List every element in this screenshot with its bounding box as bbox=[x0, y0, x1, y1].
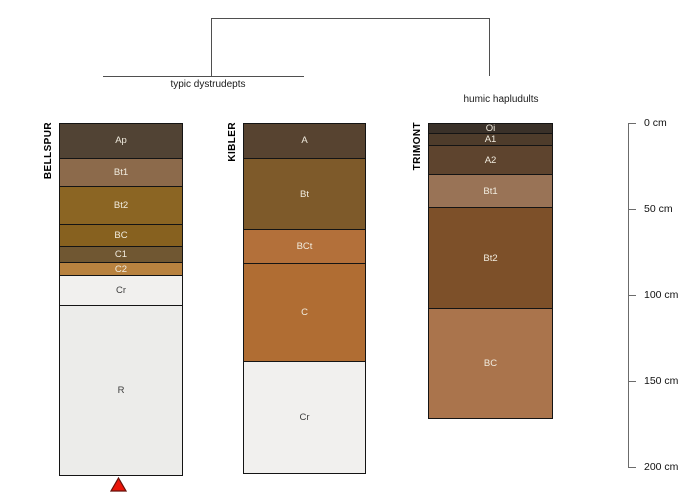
horizon-trimont-bt2: Bt2 bbox=[429, 207, 552, 308]
depth-tick-150 bbox=[628, 381, 636, 382]
horizon-bellspur-bc: BC bbox=[60, 224, 182, 246]
horizon-bellspur-ap: Ap bbox=[60, 124, 182, 158]
depth-tick-100 bbox=[628, 295, 636, 296]
horizon-trimont-oi: Oi bbox=[429, 124, 552, 133]
depth-tick-label-0: 0 cm bbox=[644, 117, 667, 129]
depth-tick-0 bbox=[628, 123, 636, 124]
horizon-kibler-a: A bbox=[244, 124, 365, 158]
depth-tick-200 bbox=[628, 467, 636, 468]
horizon-kibler-cr: Cr bbox=[244, 361, 365, 473]
depth-tick-label-200: 200 cm bbox=[644, 461, 678, 473]
depth-tick-50 bbox=[628, 209, 636, 210]
horizon-trimont-bt1: Bt1 bbox=[429, 174, 552, 207]
horizon-bellspur-bt1: Bt1 bbox=[60, 158, 182, 186]
soil-profile-figure: typic dystrudepts humic hapludults ApBt1… bbox=[0, 0, 700, 500]
dendrogram-left-branch bbox=[211, 18, 212, 76]
horizon-kibler-bct: BCt bbox=[244, 229, 365, 263]
cluster-label-typic-dystrudepts: typic dystrudepts bbox=[58, 79, 358, 90]
horizon-bellspur-c2: C2 bbox=[60, 262, 182, 275]
dendrogram-right-branch bbox=[489, 18, 490, 76]
red-triangle-icon bbox=[111, 478, 126, 491]
horizon-trimont-a2: A2 bbox=[429, 145, 552, 174]
horizon-kibler-bt: Bt bbox=[244, 158, 365, 229]
horizon-kibler-c: C bbox=[244, 263, 365, 361]
horizon-bellspur-c1: C1 bbox=[60, 246, 182, 262]
profile-bellspur: ApBt1Bt2BCC1C2CrR bbox=[59, 123, 183, 476]
selected-profile-marker bbox=[110, 477, 127, 492]
profile-name-kibler: KIBLER bbox=[227, 122, 238, 162]
profile-name-bellspur: BELLSPUR bbox=[43, 122, 54, 179]
depth-tick-label-50: 50 cm bbox=[644, 203, 673, 215]
profile-kibler: ABtBCtCCr bbox=[243, 123, 366, 474]
horizon-bellspur-r: R bbox=[60, 305, 182, 475]
dendrogram-left-cluster-bar bbox=[103, 76, 304, 77]
cluster-label-humic-hapludults: humic hapludults bbox=[351, 94, 651, 105]
depth-tick-label-100: 100 cm bbox=[644, 289, 678, 301]
depth-tick-label-150: 150 cm bbox=[644, 375, 678, 387]
profile-trimont: OiA1A2Bt1Bt2BC bbox=[428, 123, 553, 419]
horizon-trimont-bc: BC bbox=[429, 308, 552, 418]
horizon-trimont-a1: A1 bbox=[429, 133, 552, 145]
horizon-bellspur-bt2: Bt2 bbox=[60, 186, 182, 224]
dendrogram-root-link bbox=[211, 18, 490, 19]
profile-name-trimont: TRIMONT bbox=[412, 122, 423, 170]
horizon-bellspur-cr: Cr bbox=[60, 275, 182, 305]
